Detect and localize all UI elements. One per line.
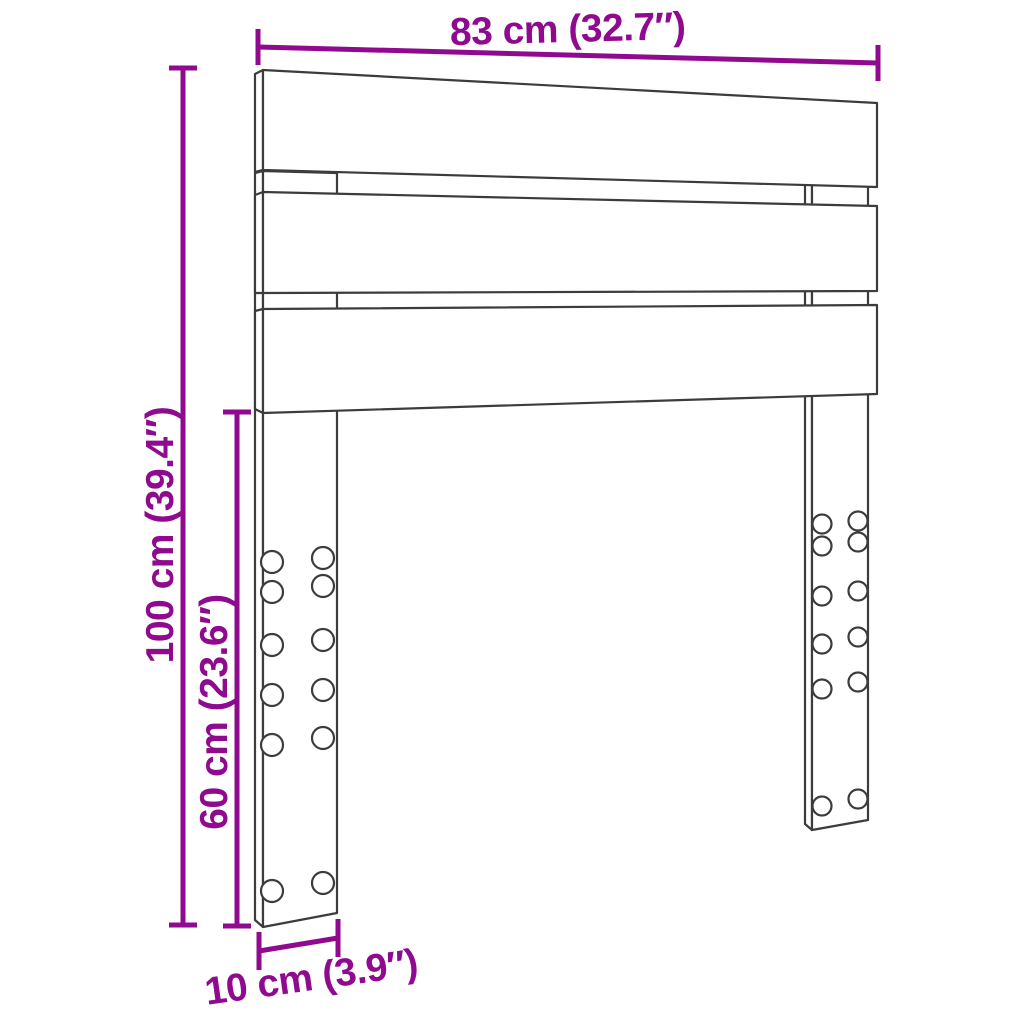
slat-bottom-front-face: [263, 305, 877, 413]
bolt-hole: [849, 790, 868, 809]
slat-bottom: [255, 305, 877, 413]
slat-middle-front-face: [263, 192, 877, 293]
bolt-hole: [813, 515, 832, 534]
bolt-hole: [849, 582, 868, 601]
leg-height-dimension-label: 60 cm (23.6″): [193, 594, 236, 829]
slat-bottom-side-face: [255, 309, 263, 413]
bolt-hole: [813, 587, 832, 606]
bolt-hole: [813, 635, 832, 654]
bolt-hole: [849, 628, 868, 647]
leg-width-dimension-line: [259, 938, 338, 951]
headboard-drawing: [255, 70, 877, 927]
bolt-hole: [849, 673, 868, 692]
dimension-diagram-canvas: 83 cm (32.7″) 100 cm (39.4″) 60 cm (23.6…: [0, 0, 1024, 1024]
bolt-hole: [261, 551, 283, 573]
bolt-hole: [312, 872, 334, 894]
slat-middle: [255, 192, 877, 293]
leg-width-dimension-label: 10 cm (3.9″): [202, 941, 420, 1013]
slat-middle-side-face: [255, 192, 263, 293]
width-dimension-label: 83 cm (32.7″): [449, 5, 686, 54]
bolt-hole: [261, 634, 283, 656]
bolt-hole: [261, 684, 283, 706]
slat-top: [255, 70, 877, 187]
bolt-hole: [813, 797, 832, 816]
bolt-hole: [813, 537, 832, 556]
slat-top-side-face: [255, 70, 263, 172]
bolt-hole: [312, 547, 334, 569]
bolt-hole: [261, 880, 283, 902]
bolt-hole: [849, 512, 868, 531]
bolt-hole: [312, 679, 334, 701]
bolt-hole: [312, 575, 334, 597]
bolt-hole: [312, 727, 334, 749]
bolt-hole: [849, 533, 868, 552]
headboard-dimension-diagram: 83 cm (32.7″) 100 cm (39.4″) 60 cm (23.6…: [0, 0, 1024, 1024]
height-dimension-label: 100 cm (39.4″): [139, 407, 182, 664]
bolt-hole: [261, 734, 283, 756]
bolt-hole: [312, 629, 334, 651]
slat-top-front-face: [263, 70, 877, 187]
bolt-hole: [261, 581, 283, 603]
bolt-hole: [813, 680, 832, 699]
